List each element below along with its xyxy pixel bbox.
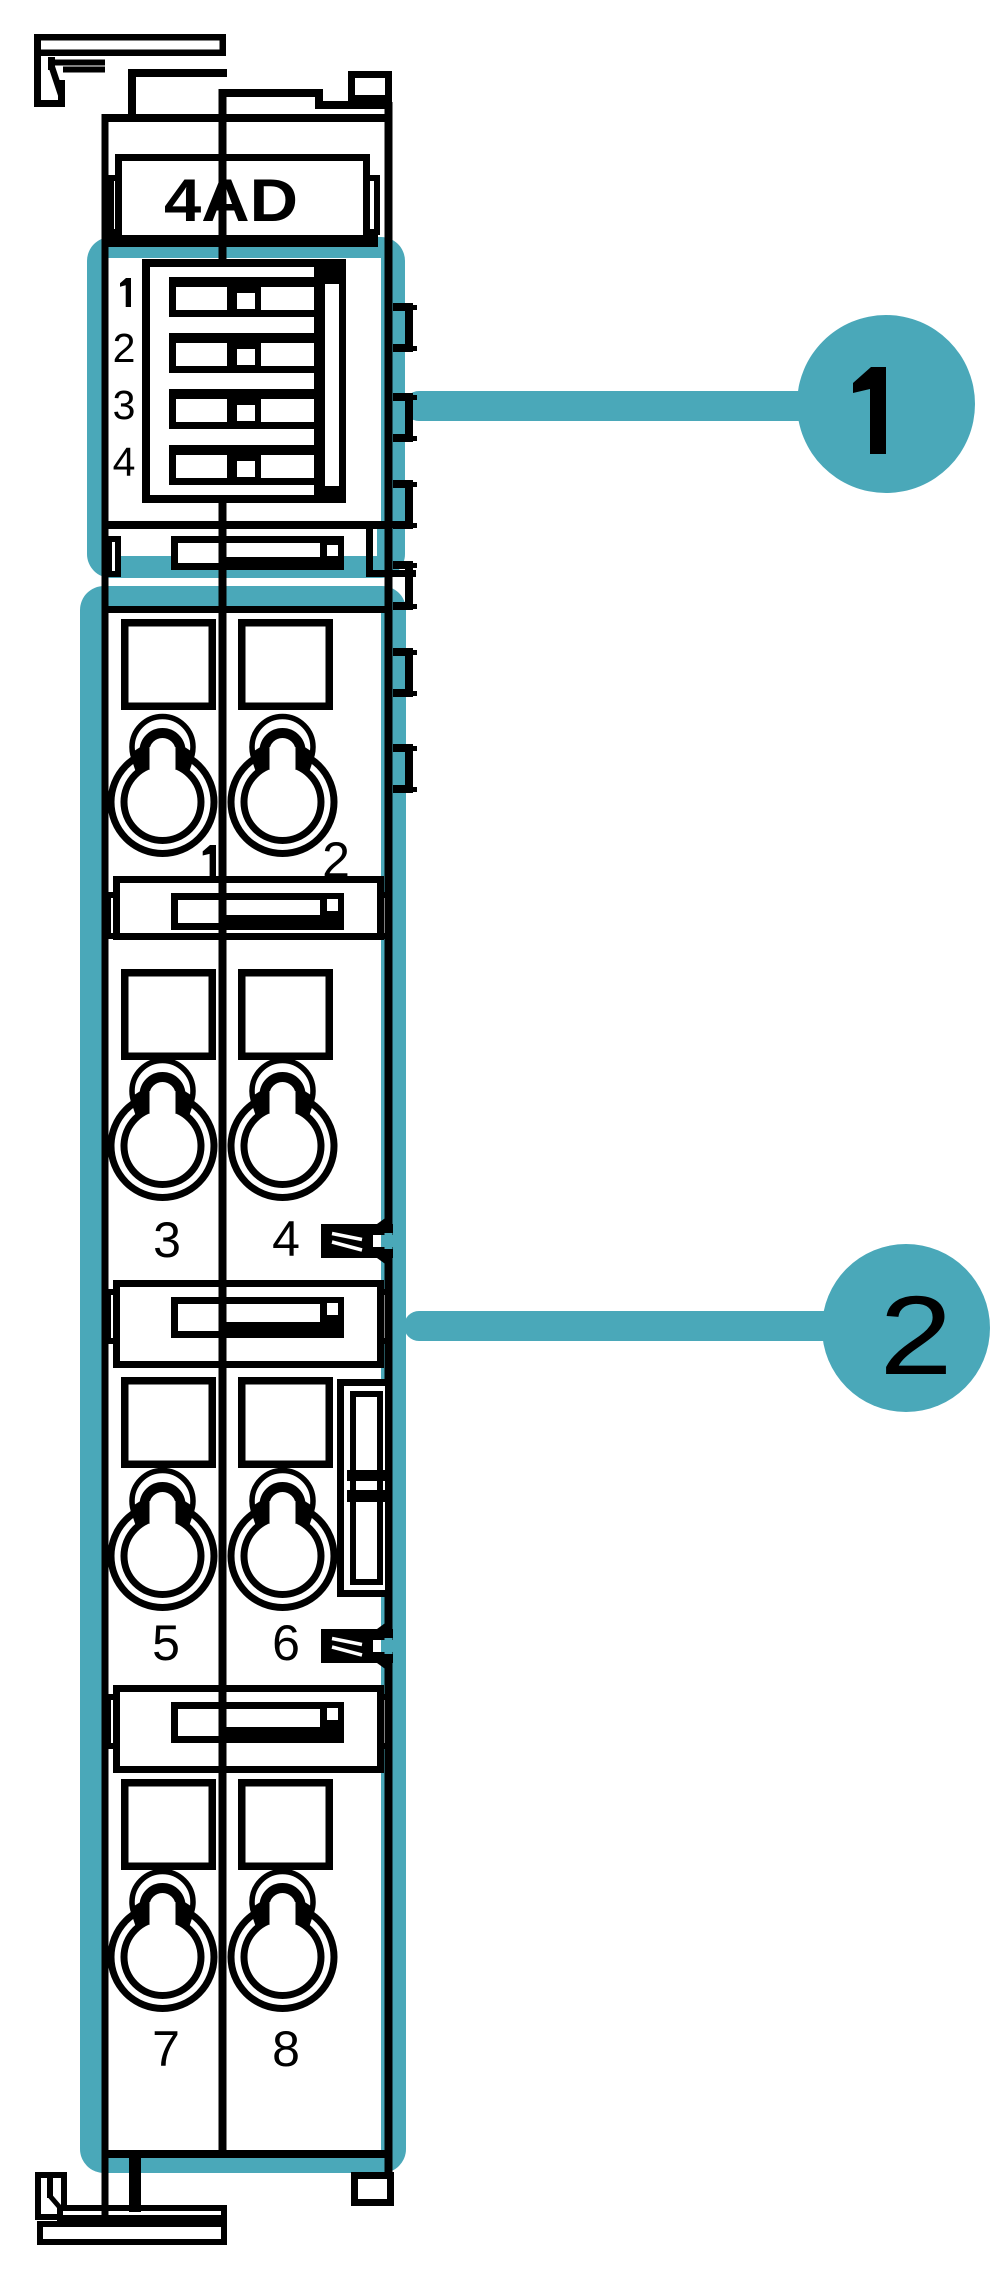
svg-text:4: 4 <box>272 1211 300 1267</box>
svg-text:2: 2 <box>880 1273 953 1398</box>
svg-text:5: 5 <box>152 1615 180 1671</box>
svg-text:3: 3 <box>113 382 136 428</box>
svg-text:6: 6 <box>272 1615 300 1671</box>
svg-text:2: 2 <box>113 325 136 371</box>
svg-text:2: 2 <box>322 832 350 888</box>
svg-text:8: 8 <box>272 2021 300 2077</box>
svg-text:4AD: 4AD <box>164 167 298 234</box>
svg-text:7: 7 <box>152 2021 180 2077</box>
svg-text:4: 4 <box>113 439 136 485</box>
svg-text:3: 3 <box>153 1212 181 1268</box>
